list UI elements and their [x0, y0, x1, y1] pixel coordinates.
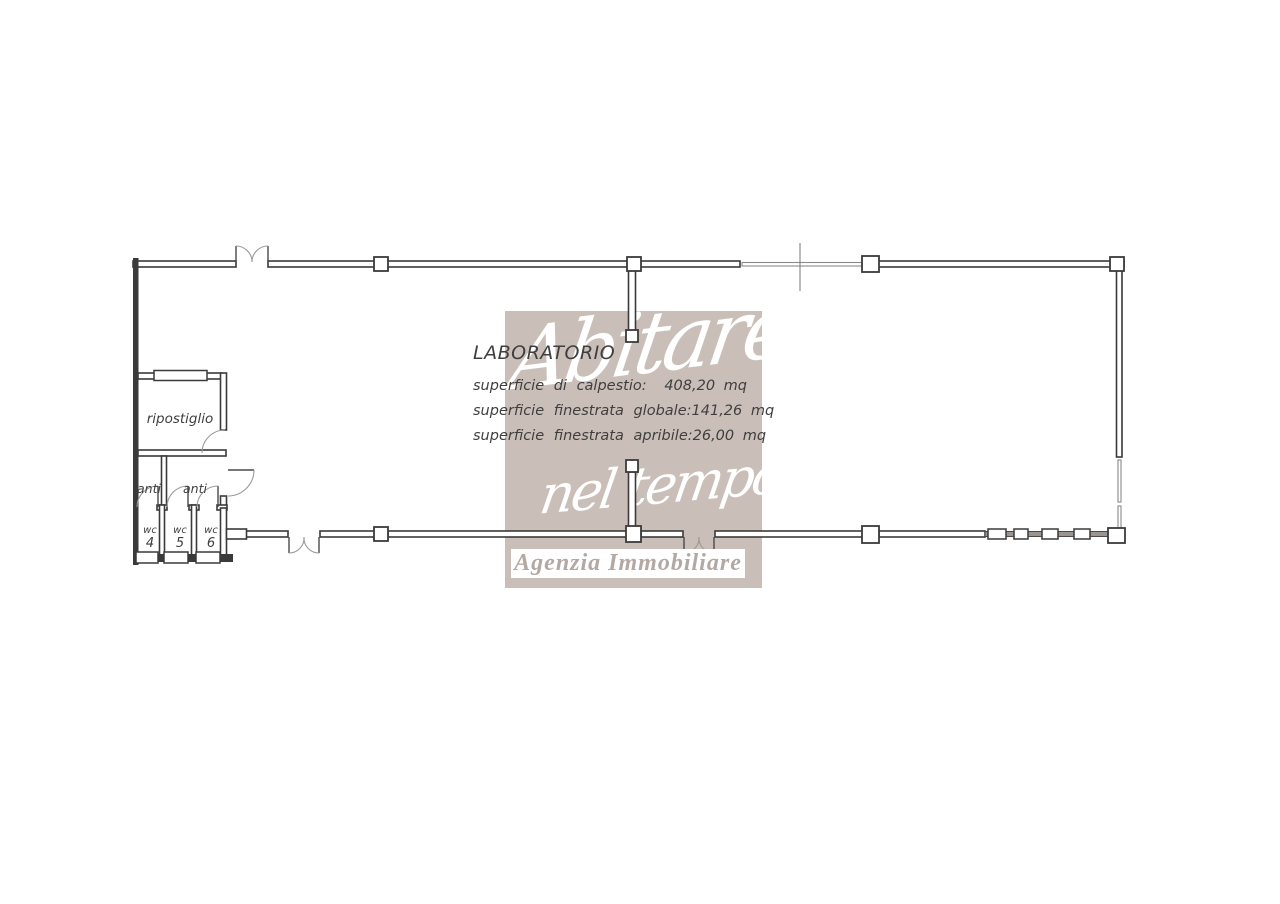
wc-word: wc [138, 526, 162, 536]
ripostiglio-window [154, 371, 207, 381]
floorplan-canvas: Abitare nel tempo [0, 0, 1280, 904]
room-label-anti-1: anti [134, 481, 164, 496]
surface-row-finestrata-apribile: superficie finestrata apribile: 26,00 mq [473, 424, 747, 449]
room-label-anti-2: anti [172, 481, 218, 496]
laboratorio-title-block: LABORATORIO superficie di calpestio: 408… [473, 342, 747, 449]
wc-word: wc [199, 526, 223, 536]
agency-banner-text: Agenzia Immobiliare [514, 550, 742, 577]
wc-word: wc [168, 526, 192, 536]
agency-banner: Agenzia Immobiliare [511, 549, 745, 578]
wc5-window [164, 552, 188, 563]
room-label-wc4: wc 4 [138, 526, 162, 550]
surface-value: 408,20 mq [664, 374, 747, 399]
room-label-wc6: wc 6 [199, 526, 223, 550]
surface-label: superficie di calpestio: [473, 374, 647, 399]
surface-label: superficie finestrata apribile: [473, 424, 693, 449]
surface-label: superficie finestrata globale: [473, 399, 692, 424]
wc6-window [196, 552, 220, 563]
wc-number: 5 [168, 537, 192, 550]
floorplan-drawing [0, 0, 1280, 904]
surface-row-finestrata-globale: superficie finestrata globale: 141,26 mq [473, 399, 747, 424]
surface-value: 141,26 mq [692, 399, 775, 424]
wc-number: 4 [138, 537, 162, 550]
right-wall [1117, 267, 1123, 530]
room-label-wc5: wc 5 [168, 526, 192, 550]
room-title-laboratorio: LABORATORIO [473, 342, 747, 364]
surface-row-calpestio: superficie di calpestio: 408,20 mq [473, 374, 747, 399]
room-label-ripostiglio: ripostiglio [138, 411, 222, 427]
surface-value: 26,00 mq [693, 424, 766, 449]
wc4-window [136, 552, 158, 563]
wc-number: 6 [199, 537, 223, 550]
